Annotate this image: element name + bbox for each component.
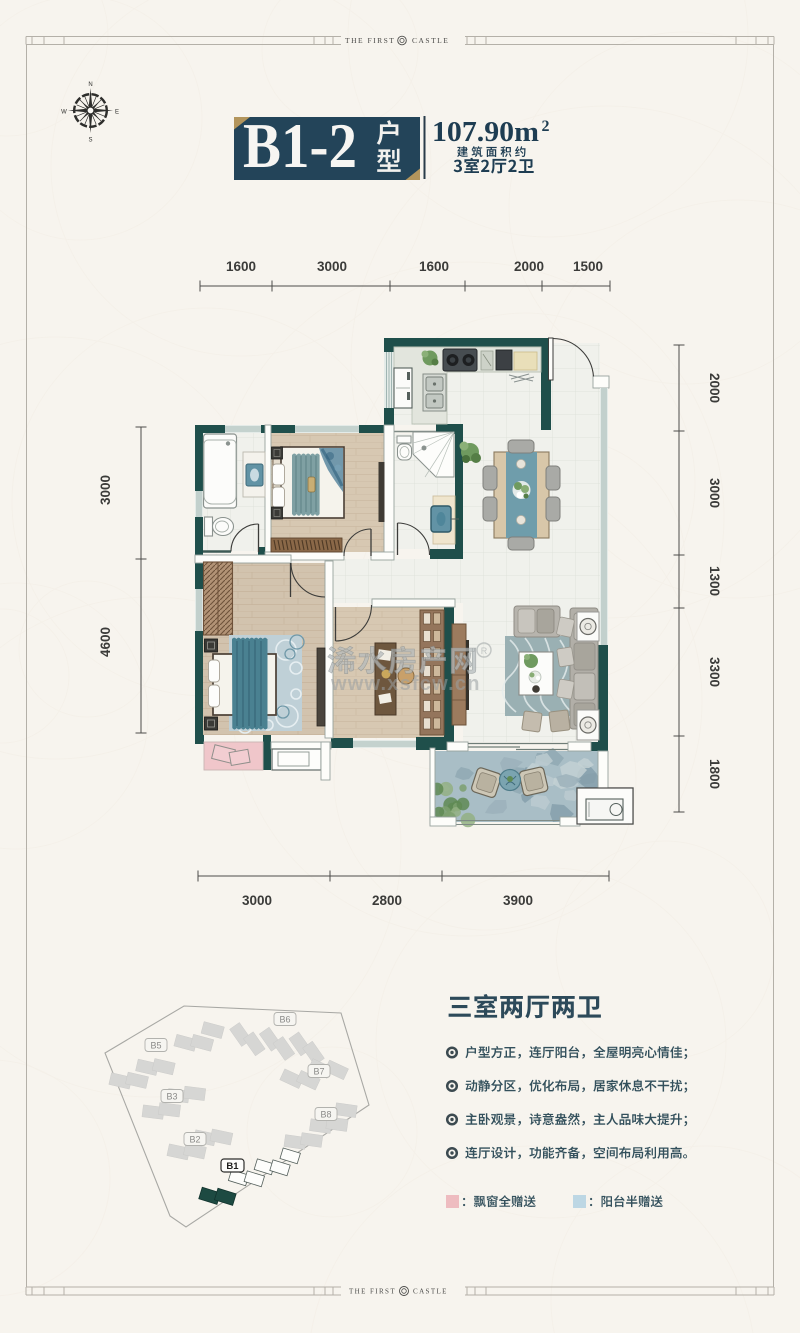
svg-text:www.xsfcw.cn: www.xsfcw.cn (330, 673, 481, 695)
svg-text:CASTLE: CASTLE (412, 36, 449, 45)
svg-text:2800: 2800 (372, 893, 402, 908)
svg-text:S: S (88, 138, 92, 144)
svg-text:3000: 3000 (707, 478, 722, 508)
svg-text:3000: 3000 (317, 259, 347, 274)
svg-text:B3: B3 (166, 1092, 177, 1102)
svg-text:1600: 1600 (226, 259, 256, 274)
svg-text:E: E (115, 110, 119, 116)
svg-text:1800: 1800 (707, 759, 722, 789)
svg-text:3300: 3300 (707, 657, 722, 687)
svg-text:4600: 4600 (98, 627, 113, 657)
svg-text:B5: B5 (150, 1041, 161, 1051)
svg-text:W: W (61, 110, 67, 116)
svg-text:3000: 3000 (242, 893, 272, 908)
svg-text:B1-2: B1-2 (243, 110, 357, 181)
svg-text:1600: 1600 (419, 259, 449, 274)
svg-text:R: R (481, 646, 488, 656)
svg-text:1500: 1500 (573, 259, 603, 274)
svg-text:THE FIRST: THE FIRST (345, 36, 395, 45)
svg-text:B8: B8 (320, 1110, 331, 1120)
svg-text:CASTLE: CASTLE (413, 1288, 448, 1296)
svg-text:2000: 2000 (514, 259, 544, 274)
svg-text:B2: B2 (189, 1135, 200, 1145)
svg-text:2: 2 (542, 118, 550, 135)
svg-text:B6: B6 (279, 1015, 290, 1025)
svg-text:N: N (88, 82, 92, 88)
svg-text:107.90m: 107.90m (432, 116, 539, 148)
svg-text:3900: 3900 (503, 893, 533, 908)
svg-text:1300: 1300 (707, 566, 722, 596)
svg-text:B1: B1 (226, 1161, 239, 1172)
svg-text:THE FIRST: THE FIRST (349, 1288, 396, 1296)
svg-text:3000: 3000 (98, 475, 113, 505)
svg-text:B7: B7 (313, 1067, 324, 1077)
svg-text:2000: 2000 (707, 373, 722, 403)
